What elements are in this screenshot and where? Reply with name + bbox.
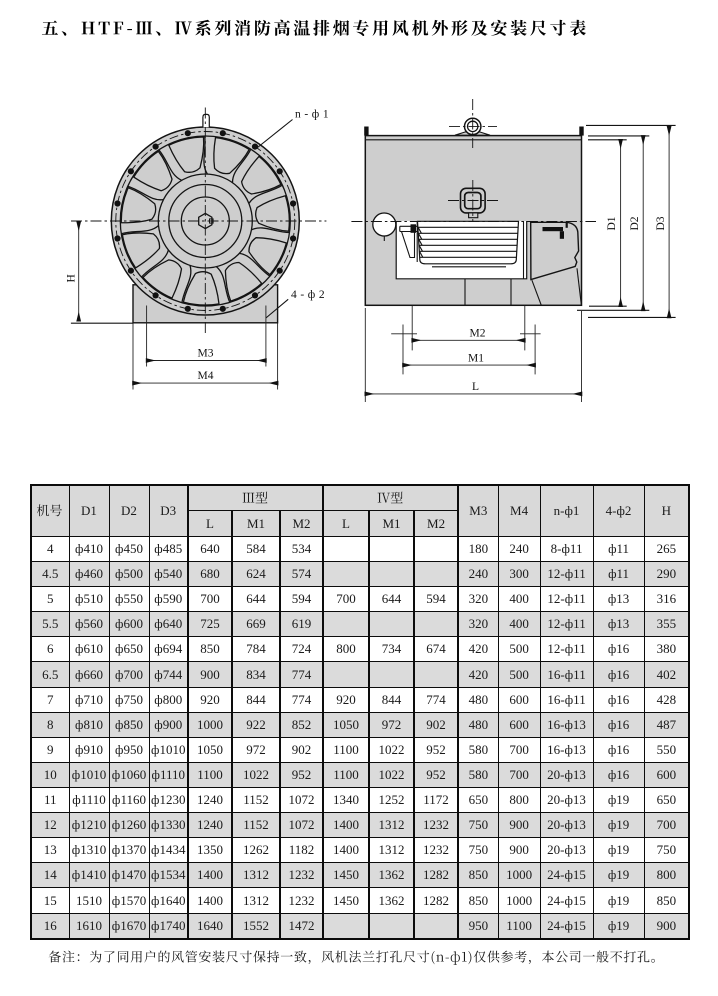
svg-text:4-ф2: 4-ф2 — [291, 289, 328, 301]
svg-text:M2: M2 — [470, 328, 486, 340]
svg-text:H: H — [66, 274, 78, 282]
svg-text:n-ф1: n-ф1 — [295, 109, 332, 121]
svg-text:L: L — [472, 381, 479, 393]
svg-text:M4: M4 — [198, 370, 214, 382]
svg-text:D1: D1 — [606, 216, 618, 230]
svg-text:D3: D3 — [655, 216, 667, 230]
svg-text:D2: D2 — [629, 216, 641, 230]
svg-text:M3: M3 — [198, 348, 214, 360]
svg-text:M1: M1 — [468, 352, 484, 364]
